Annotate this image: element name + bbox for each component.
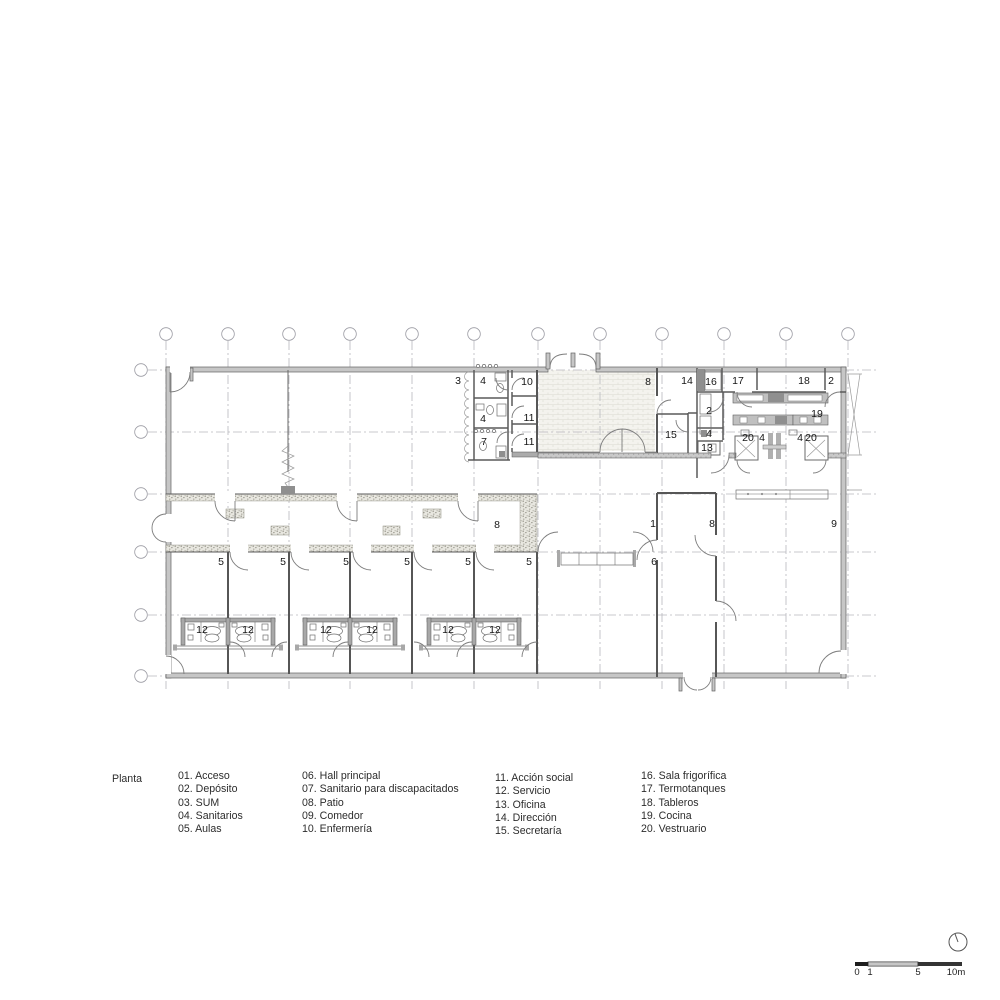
service-modules (173, 618, 529, 651)
legend-item: 19. Cocina (641, 810, 726, 823)
room-label-10: 10 (521, 376, 533, 388)
room-label-8: 8 (494, 519, 500, 531)
room-label-12: 12 (366, 624, 378, 636)
room-label-5: 5 (465, 556, 471, 568)
legend-item: 09. Comedor (302, 810, 459, 823)
room-label-1: 1 (650, 518, 656, 530)
legend-item: 10. Enfermería (302, 823, 459, 836)
room-label-20: 20 (742, 432, 754, 444)
scale-tick-5: 5 (915, 967, 920, 978)
room-label-14: 14 (681, 375, 693, 387)
room-label-5: 5 (280, 556, 286, 568)
room-label-5: 5 (404, 556, 410, 568)
legend-item: 08. Patio (302, 797, 459, 810)
room-label-8: 8 (645, 376, 651, 388)
room-label-12: 12 (242, 624, 254, 636)
legend-item: 07. Sanitario para discapacitados (302, 783, 459, 796)
legend-column: 06. Hall principal07. Sanitario para dis… (302, 770, 459, 836)
legend-item: 06. Hall principal (302, 770, 459, 783)
room-label-2: 2 (706, 405, 712, 417)
floor-fills (539, 370, 655, 452)
room-label-4: 4 (759, 432, 765, 444)
room-label-11: 11 (524, 436, 535, 448)
north-indicator-icon (949, 933, 967, 951)
legend-item: 16. Sala frigorífica (641, 770, 726, 783)
legend-item: 12. Servicio (495, 785, 573, 798)
scale-bar: 0 1 5 10m (854, 962, 965, 978)
room-label-12: 12 (489, 624, 501, 636)
room-label-5: 5 (526, 556, 532, 568)
floor-plan-sheet: 3410411711814161718221915413204420855555… (0, 0, 1000, 1000)
legend-item: 02. Depósito (178, 783, 243, 796)
room-label-6: 6 (651, 556, 657, 568)
room-label-9: 9 (831, 518, 837, 530)
room-label-13: 13 (701, 442, 713, 454)
legend-item: 04. Sanitarios (178, 810, 243, 823)
scale-tick-10: 10m (947, 967, 966, 978)
room-label-11: 11 (524, 412, 535, 424)
room-label-4: 4 (797, 432, 803, 444)
legend-item: 01. Acceso (178, 770, 243, 783)
scale-tick-0: 0 (854, 967, 859, 978)
scale-tick-1: 1 (867, 967, 872, 978)
legend-column: 11. Acción social12. Servicio13. Oficina… (495, 772, 573, 838)
room-label-20: 20 (805, 432, 817, 444)
legend-item: 13. Oficina (495, 799, 573, 812)
legend-item: 20. Vestruario (641, 823, 726, 836)
legend-item: 18. Tableros (641, 797, 726, 810)
legend-column: 01. Acceso02. Depósito03. SUM04. Sanitar… (178, 770, 243, 836)
floor-plan-svg: 3410411711814161718221915413204420855555… (0, 0, 1000, 1000)
room-label-4: 4 (706, 428, 712, 440)
room-label-8: 8 (709, 518, 715, 530)
room-label-4: 4 (480, 413, 486, 425)
legend-item: 05. Aulas (178, 823, 243, 836)
room-labels-layer: 3410411711814161718221915413204420855555… (196, 375, 837, 636)
room-label-5: 5 (343, 556, 349, 568)
legend-item: 11. Acción social (495, 772, 573, 785)
hall-bench (557, 550, 636, 567)
room-label-15: 15 (665, 429, 677, 441)
room-label-12: 12 (320, 624, 332, 636)
room-label-12: 12 (442, 624, 454, 636)
room-label-2: 2 (828, 375, 834, 387)
legend-item: 17. Termotanques (641, 783, 726, 796)
room-label-18: 18 (798, 375, 810, 387)
legend-item: 03. SUM (178, 797, 243, 810)
room-label-4: 4 (480, 375, 486, 387)
room-label-17: 17 (732, 375, 744, 387)
legend-column: 16. Sala frigorífica17. Termotanques18. … (641, 770, 726, 836)
legend-item: 14. Dirección (495, 812, 573, 825)
room-label-3: 3 (455, 375, 461, 387)
legend-title: Planta (112, 773, 142, 785)
room-label-19: 19 (811, 408, 823, 420)
patio-band (166, 493, 537, 553)
room-label-7: 7 (481, 436, 487, 448)
room-label-16: 16 (705, 376, 717, 388)
room-label-12: 12 (196, 624, 208, 636)
legend-item: 15. Secretaría (495, 825, 573, 838)
room-label-5: 5 (218, 556, 224, 568)
